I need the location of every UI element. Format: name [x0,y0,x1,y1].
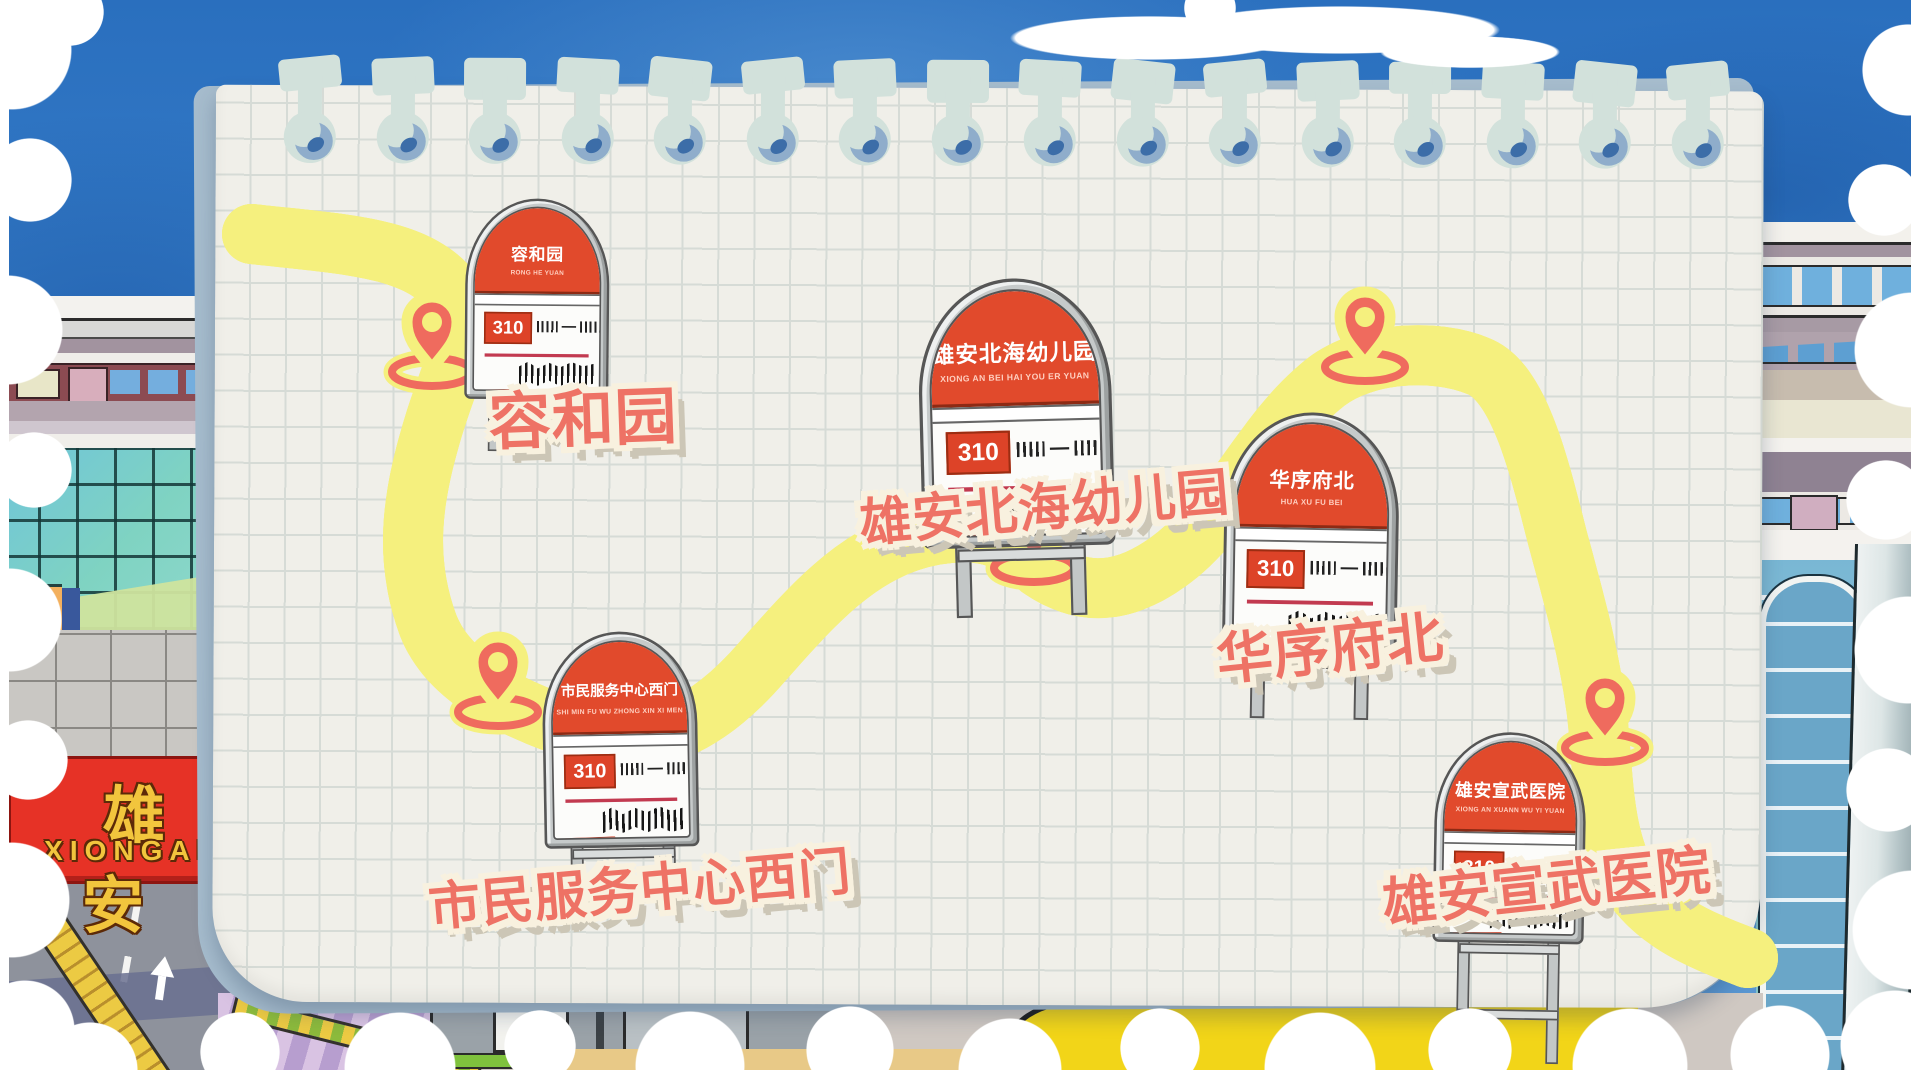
route-number: 310 [564,754,616,789]
stop-name: 市民服务中心西门 [552,677,687,701]
sign-header: 雄安北海幼儿园 XIONG AN BEI HAI YOU ER YUAN [929,289,1099,408]
stop-pinyin: XIONG AN XUANN WU YI YUAN [1445,805,1576,815]
barcode-decoration [1310,560,1388,576]
stop-name: 容和园 [475,241,600,266]
route-number: 310 [1246,549,1305,589]
sign-header: 容和园 RONG HE YUAN [475,208,601,295]
bus-route-map-scene: 雄安 XIONGAN [0,0,1920,1080]
bus-stop-sign-rongheyuan: 容和园 RONG HE YUAN 310 [463,198,610,535]
stop-pinyin: XIONG AN BEI HAI YOU ER YUAN [931,370,1098,384]
sign-header: 市民服务中心西门 SHI MIN FU WU ZHONG XIN XI MEN [551,641,687,735]
stop-name: 雄安北海幼儿园 [930,334,1098,370]
route-number: 310 [484,312,532,344]
barcode-decoration [603,806,684,833]
sign-header: 雄安宣武医院 XIONG AN XUANN WU YI YUAN [1444,741,1577,833]
barcode-decoration [1017,439,1103,457]
label-rongheyuan: 容和园 [487,365,679,462]
stop-name: 雄安宣武医院 [1445,777,1576,804]
red-arrow-decoration [565,836,620,840]
red-arrow-decoration [1452,931,1506,936]
barcode-decoration [621,761,690,775]
barcode-decoration [537,320,601,333]
stop-pinyin: SHI MIN FU WU ZHONG XIN XI MEN [553,706,687,716]
stop-name: 华序府北 [1236,464,1388,496]
bus-stop-sign-citizen-center-west-gate: 市民服务中心西门 SHI MIN FU WU ZHONG XIN XI MEN … [541,630,702,994]
stop-pinyin: HUA XU FU BEI [1236,497,1387,508]
sign-header: 华序府北 HUA XU FU BEI [1236,423,1389,529]
stop-pinyin: RONG HE YUAN [475,268,600,276]
